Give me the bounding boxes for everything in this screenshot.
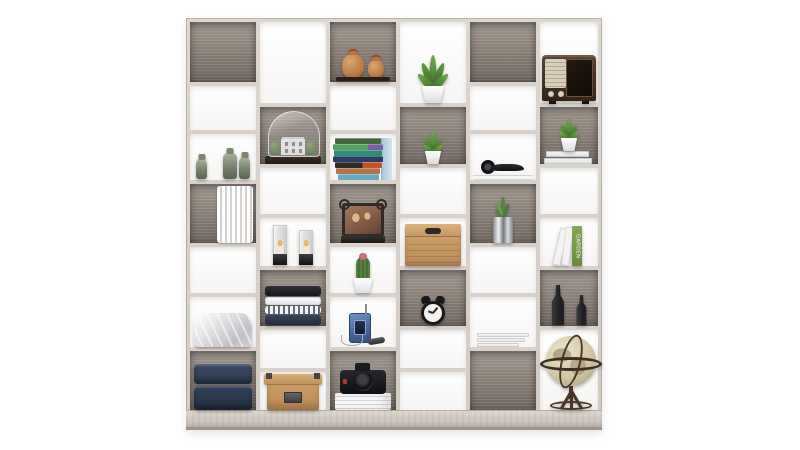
shelf-column-6: GARDEN xyxy=(540,22,598,410)
agave-plant-white-pot xyxy=(410,53,456,103)
colorful-book-stack xyxy=(333,134,393,180)
compartment-c5r4 xyxy=(470,184,536,247)
compartment-c3r6 xyxy=(330,297,396,351)
compartment-c3r5 xyxy=(330,247,396,297)
compartment-c2r3 xyxy=(260,168,326,218)
compartment-c4r2 xyxy=(400,107,466,168)
shelf-plinth xyxy=(186,410,602,430)
compartment-c1r6 xyxy=(190,297,256,351)
glass-hurricane-candles xyxy=(273,225,313,265)
compartment-c4r3 xyxy=(400,168,466,218)
shelf-column-4 xyxy=(400,22,466,410)
compartment-c6r1 xyxy=(540,22,598,107)
compartment-c4r6 xyxy=(400,330,466,372)
compartment-c6r4: GARDEN xyxy=(540,218,598,270)
bookshelf-unit: GARDEN xyxy=(186,18,602,430)
dark-bottle-sculptures xyxy=(550,285,588,325)
compartment-c6r6 xyxy=(540,330,598,410)
family-photo-frame xyxy=(339,199,387,243)
vintage-wooden-radio xyxy=(542,55,596,101)
compartment-c2r4 xyxy=(260,218,326,270)
headphones-on-magazines xyxy=(473,158,533,180)
family-photo xyxy=(345,206,381,234)
compartment-c1r2 xyxy=(190,86,256,134)
compartment-c6r5 xyxy=(540,270,598,330)
garden-book-spine-text: GARDEN xyxy=(575,234,580,258)
product-photo-scene: GARDEN xyxy=(0,0,800,450)
kraft-storage-box-with-lid xyxy=(267,377,319,410)
folded-blue-jeans xyxy=(194,364,252,410)
succulent-on-white-books xyxy=(544,108,594,164)
twin-bell-alarm-clock xyxy=(418,296,448,326)
kraft-box-with-handle xyxy=(405,224,461,266)
compartment-c6r2 xyxy=(540,107,598,168)
folded-shirts-stack xyxy=(265,286,321,325)
compartment-c3r7 xyxy=(330,351,396,410)
compartment-c2r2 xyxy=(260,107,326,168)
glass-dome-miniature-house xyxy=(265,112,321,164)
compartment-c4r1 xyxy=(400,22,466,107)
green-glass-candle-holders xyxy=(190,153,256,179)
compartment-c3r3 xyxy=(330,134,396,184)
plant-in-chrome-pot xyxy=(486,195,520,243)
compartment-c5r2 xyxy=(470,86,536,134)
microphone xyxy=(368,337,386,346)
cactus-in-white-pot xyxy=(350,253,376,293)
compartment-c4r4 xyxy=(400,218,466,270)
leaning-books-garden: GARDEN xyxy=(548,222,590,266)
compartment-c1r4 xyxy=(190,184,256,247)
compartment-c5r3 xyxy=(470,134,536,184)
white-pleated-paper-decor xyxy=(217,186,253,243)
small-succulent-white-pot xyxy=(416,128,450,164)
compartment-c1r7 xyxy=(190,351,256,410)
shelf-column-2 xyxy=(260,22,326,410)
dslr-camera-on-magazines xyxy=(334,362,392,410)
compartment-c4r5 xyxy=(400,270,466,330)
compartment-c4r7 xyxy=(400,372,466,410)
compartment-c3r4 xyxy=(330,184,396,247)
white-book-stack xyxy=(475,333,531,347)
radio-dark-panel xyxy=(566,59,593,97)
compartment-c2r7 xyxy=(260,372,326,410)
shelf-column-5 xyxy=(470,22,536,410)
compartment-c6r3 xyxy=(540,168,598,218)
radio-knobs xyxy=(548,91,554,97)
compartment-c1r1 xyxy=(190,22,256,86)
compartment-c5r7 xyxy=(470,351,536,410)
compartment-c5r5 xyxy=(470,247,536,297)
radio-speaker-grille xyxy=(545,59,566,88)
shelf-columns: GARDEN xyxy=(190,22,598,410)
antique-globe-on-stand xyxy=(540,334,598,410)
compartment-c5r1 xyxy=(470,22,536,86)
compartment-c2r6 xyxy=(260,330,326,372)
compartment-c3r1 xyxy=(330,22,396,86)
compartment-c2r5 xyxy=(260,270,326,330)
garden-book: GARDEN xyxy=(572,226,582,266)
terracotta-jugs-on-tray xyxy=(336,54,390,82)
compartment-c1r5 xyxy=(190,247,256,297)
compartment-c5r6 xyxy=(470,297,536,351)
compartment-c3r2 xyxy=(330,86,396,134)
shelf-column-1 xyxy=(190,22,256,410)
shelf-column-3 xyxy=(330,22,396,410)
blue-cassette-player-with-mic xyxy=(340,303,386,347)
compartment-c2r1 xyxy=(260,22,326,107)
camera-lens xyxy=(354,372,373,391)
folded-white-duvet xyxy=(194,313,252,347)
compartment-c1r3 xyxy=(190,134,256,184)
